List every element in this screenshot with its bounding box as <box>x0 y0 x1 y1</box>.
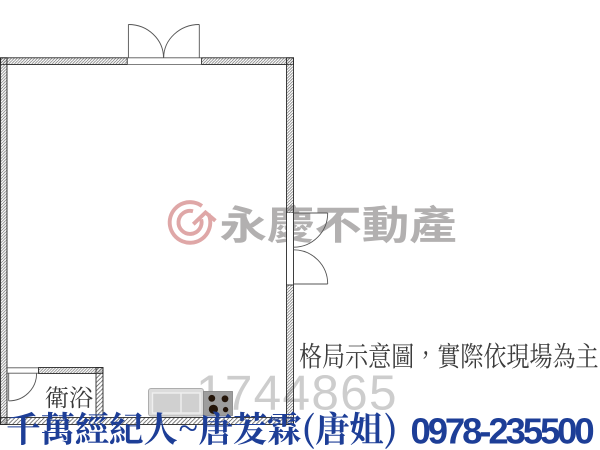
svg-text:0978-235500: 0978-235500 <box>411 410 594 450</box>
